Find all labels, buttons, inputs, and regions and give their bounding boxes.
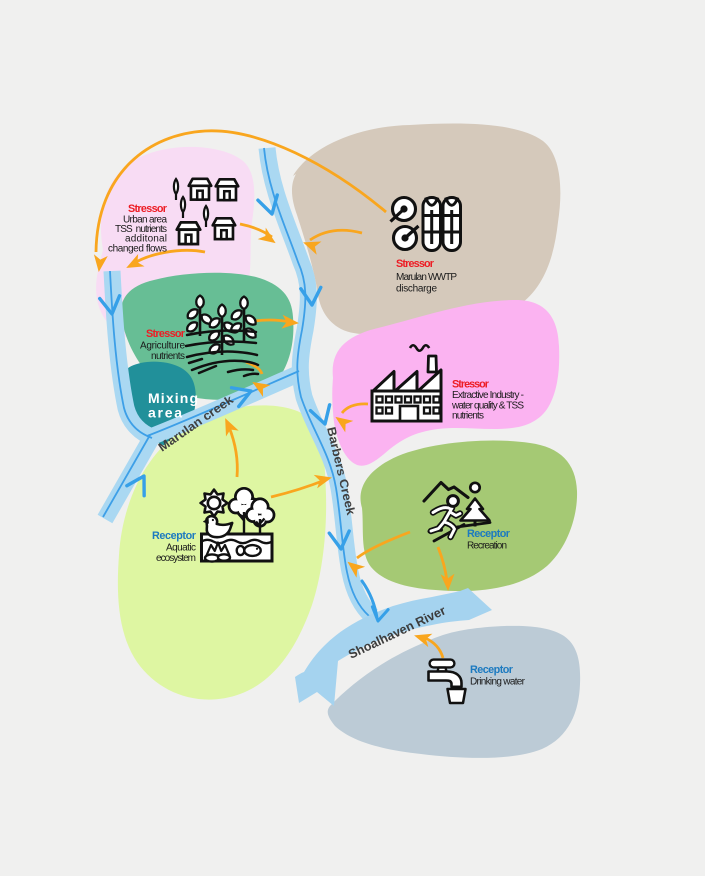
svg-text:Stressor: Stressor — [452, 379, 490, 391]
svg-text:area: area — [148, 405, 182, 421]
svg-text:Receptor: Receptor — [152, 530, 197, 542]
svg-text:Stressor: Stressor — [146, 328, 186, 340]
svg-text:Agriculture: Agriculture — [140, 341, 185, 352]
svg-text:Marulan WWTP: Marulan WWTP — [396, 272, 457, 283]
svg-text:Aquatic: Aquatic — [166, 543, 196, 554]
svg-text:Receptor: Receptor — [470, 664, 514, 676]
svg-text:Drinking water: Drinking water — [470, 677, 526, 688]
svg-text:changed flows: changed flows — [108, 244, 167, 255]
svg-text:nutrients: nutrients — [452, 411, 484, 422]
svg-text:ecosystem: ecosystem — [156, 553, 196, 564]
svg-text:discharge: discharge — [396, 284, 437, 295]
svg-text:Stressor: Stressor — [396, 258, 435, 270]
svg-text:Stressor: Stressor — [128, 203, 168, 215]
svg-text:Recreation: Recreation — [467, 541, 507, 552]
svg-text:Receptor: Receptor — [467, 528, 511, 540]
svg-text:nutrients: nutrients — [151, 351, 185, 362]
